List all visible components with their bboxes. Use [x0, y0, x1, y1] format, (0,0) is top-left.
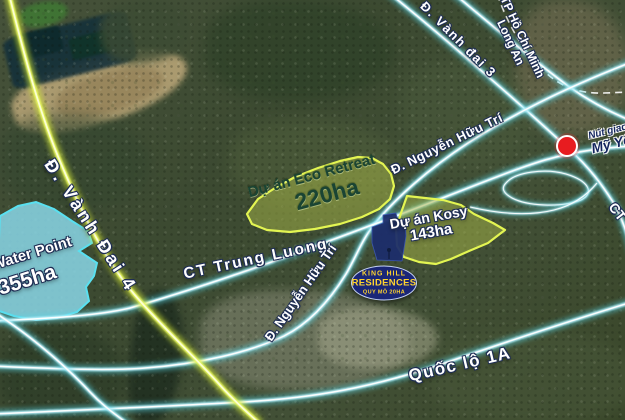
ramp-stroke — [470, 183, 597, 214]
badge-brand-main: RESIDENCES — [352, 279, 417, 289]
junction-marker-dot — [557, 136, 577, 156]
site-marker-head — [387, 248, 391, 252]
king-hill-badge: KING HILL RESIDENCES QUY MÔ 20HA — [351, 266, 417, 301]
badge-scale: QUY MÔ 20HA — [363, 289, 405, 295]
junction-marker — [554, 133, 580, 159]
map-canvas[interactable]: Đ. Vành Đai 4 Đ. Vành đai 3 TP Hồ Chí Mi… — [0, 0, 625, 420]
interchange-ramp-connector — [470, 183, 597, 214]
